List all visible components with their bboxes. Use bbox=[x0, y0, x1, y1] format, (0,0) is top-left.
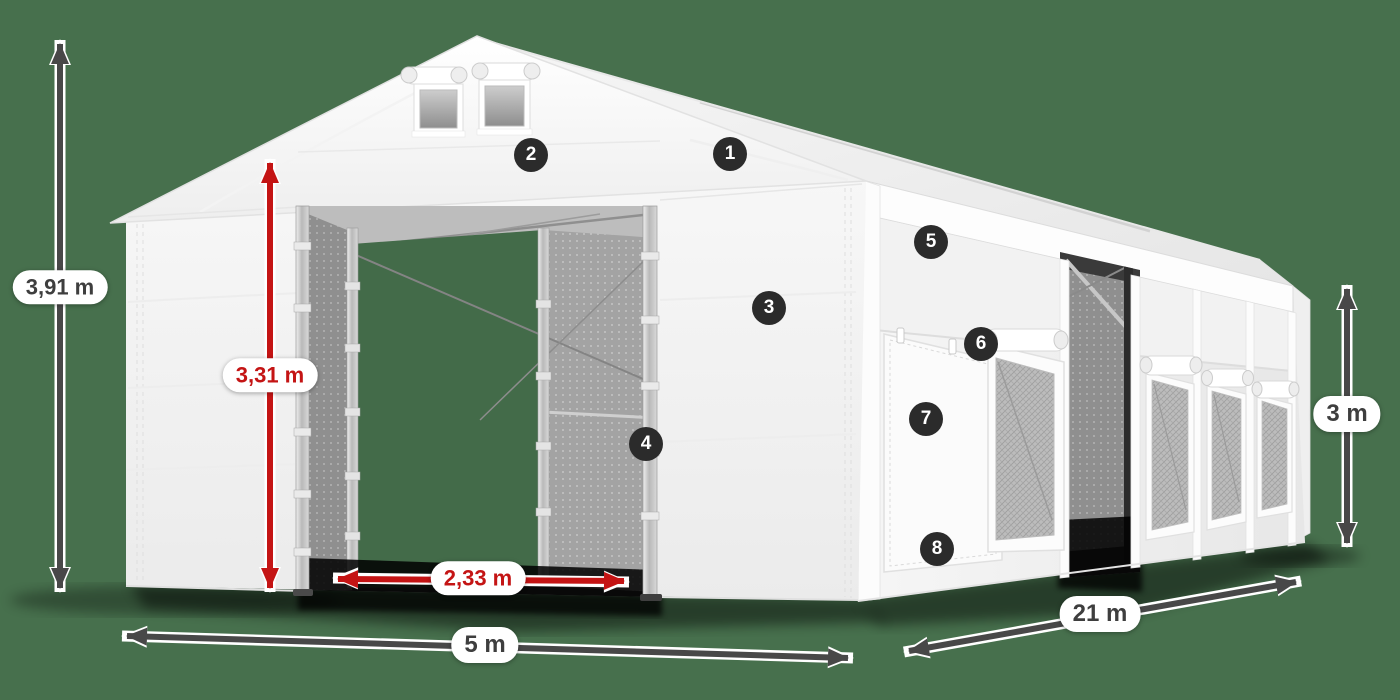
callout-badge-5: 5 bbox=[914, 225, 948, 259]
entrance-width-label: 2,33 m bbox=[431, 561, 526, 595]
callout-badge-1: 1 bbox=[713, 137, 747, 171]
product-diagram: 3,91 m 3,31 m 2,33 m 5 m 21 m 3 m 1 2 3 … bbox=[0, 0, 1400, 700]
side-window-2 bbox=[1140, 356, 1202, 540]
callout-badge-8: 8 bbox=[920, 532, 954, 566]
see-through-opening bbox=[352, 230, 543, 588]
interior-far-mesh bbox=[543, 230, 657, 592]
tent-interior bbox=[303, 206, 657, 597]
callout-badge-3: 3 bbox=[752, 291, 786, 325]
zipper-pull-icon bbox=[949, 339, 956, 354]
side-window-1 bbox=[983, 329, 1068, 552]
callout-badge-2: 2 bbox=[514, 138, 548, 172]
side-open-entrance bbox=[1060, 250, 1140, 580]
callout-badge-4: 4 bbox=[629, 427, 663, 461]
total-height-label: 3,91 m bbox=[13, 270, 108, 304]
callout-badge-6: 6 bbox=[964, 327, 998, 361]
entrance-height-label: 3,31 m bbox=[223, 358, 318, 392]
roof-vent-right bbox=[472, 63, 540, 135]
zipper-pull-icon bbox=[897, 328, 904, 343]
interior-left-mesh bbox=[303, 212, 352, 590]
entrance-opening bbox=[293, 206, 662, 601]
wall-height-label: 3 m bbox=[1313, 396, 1380, 432]
tent-illustration bbox=[0, 0, 1400, 700]
callout-badge-7: 7 bbox=[909, 402, 943, 436]
side-length-label: 21 m bbox=[1060, 596, 1141, 632]
front-width-label: 5 m bbox=[451, 627, 518, 663]
